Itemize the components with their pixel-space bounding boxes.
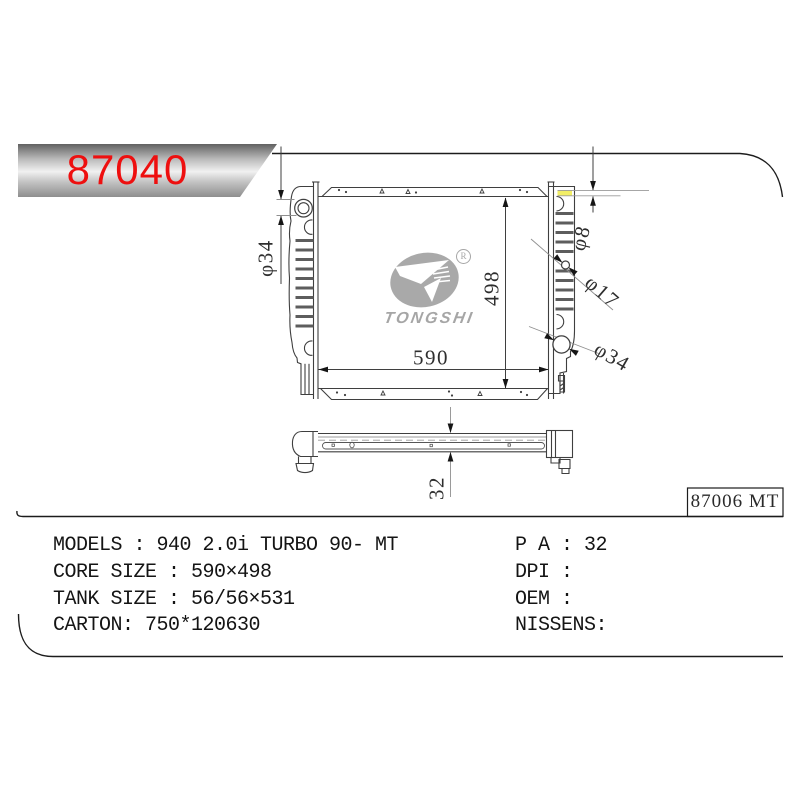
frame-top-line — [272, 154, 783, 198]
spec-models: MODELS : 940 2.0i TURBO 90- MT — [53, 534, 398, 558]
dim-core-width-label: 590 — [413, 346, 449, 371]
bottom-band-rivets — [336, 390, 528, 396]
radiator-bottom-view — [292, 431, 572, 474]
radiator-ports — [553, 261, 570, 353]
bottom-header-band — [318, 389, 549, 400]
spec-core-size: CORE SIZE : 590×498 — [53, 561, 272, 585]
outlet-port — [553, 336, 570, 353]
left-tank-notch-bottom — [304, 341, 312, 355]
right-tank — [549, 187, 575, 394]
spec-dpi: DPI : — [515, 561, 573, 585]
ref-code: 87006 MT — [691, 491, 780, 513]
left-tank — [289, 187, 314, 395]
spec-tank-size: TANK SIZE : 56/56×531 — [53, 588, 295, 612]
left-tank-ribs — [296, 241, 314, 327]
spec-pa: P A : 32 — [515, 534, 607, 558]
top-band-rivets — [338, 189, 528, 194]
spec-nissens: NISSENS: — [515, 614, 607, 638]
right-tank-notch-mid — [557, 315, 564, 329]
overflow-tube — [558, 190, 650, 196]
dim-filler-neck-label: φ34 — [254, 239, 279, 277]
watermark-brand: TONGSHI — [382, 310, 475, 328]
spec-oem: OEM : — [515, 588, 573, 612]
dim-core-height-label: 498 — [480, 270, 505, 306]
registered-trademark-icon: R — [456, 249, 471, 264]
bottom-bar-holes — [332, 442, 510, 448]
spec-carton: CARTON: 750*120630 — [53, 614, 260, 638]
technical-drawing — [0, 0, 800, 800]
brand-logo-icon — [385, 246, 464, 313]
right-tank-notch-top — [557, 197, 564, 211]
bottom-band-tabs — [381, 391, 482, 396]
top-header-band — [318, 188, 549, 197]
dim-bottom-thickness-label: 32 — [425, 476, 450, 500]
top-band-tabs — [380, 189, 484, 194]
left-tank-notch-top — [304, 220, 312, 234]
inlet-port — [562, 261, 570, 269]
frame-mid-line — [17, 511, 783, 517]
